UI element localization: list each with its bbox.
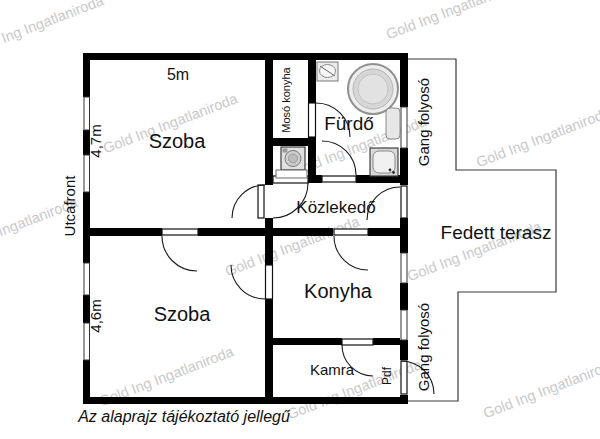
room-label-gang-folyoso-also: Gang folyosó [415,303,432,391]
wall-left [83,360,90,404]
room-label-kamra: Kamra [310,361,355,378]
caption-text: Az alaprajz tájékoztató jellegű [77,408,291,425]
watermark-text: Gold Ing Ingatlaniroda [223,213,363,279]
door-szoba1-kozlekedo [232,185,265,218]
dimension-height-4-7m: 4,7m [87,124,104,157]
wall-top [83,53,408,60]
dimension-width-5m: 5m [167,66,189,83]
wall-right [400,148,408,185]
door-kozlekedo-konyha [334,229,368,270]
bathroom-sink-icon [317,62,338,81]
room-label-furdo: Fürdő [324,113,374,134]
room-label-szoba-felso: Szoba [149,130,207,152]
window [84,263,90,295]
room-label-gang-folyoso-felso: Gang folyosó [415,78,432,166]
wall-konyha-kamra [265,338,342,345]
room-label-szoba-also: Szoba [154,303,212,325]
wall-moso-bottom [265,138,316,146]
wall-left [83,53,90,97]
wall-right [400,283,408,310]
dimension-height-4-6m: 4,6m [87,299,104,332]
window [401,310,407,340]
wall-right [400,340,408,360]
room-label-moso-konyha: Mosó konyha [280,66,292,132]
wall-konyha-kamra [373,338,400,345]
wall-right [400,53,408,107]
washbasin-icon [386,108,400,139]
watermark-text: Gold Ing Ingatlaniroda [0,0,107,58]
wall-right [400,218,408,253]
shower-tray-icon [370,148,398,176]
floor-plan-svg: Gold Ing Ingatlaniroda Gold Ing Ingatlan… [0,0,600,439]
door-szoba1-szoba2 [162,229,198,271]
wall-middle-horizontal [368,228,400,236]
utcafront-label: Utcafront [61,175,78,237]
wall-furdo-bottom [308,175,322,183]
wall-middle-horizontal [198,228,333,236]
room-label-pdf: Pdf [380,366,394,385]
room-label-konyha: Konyha [304,280,373,302]
watermark-text: Gold Ing Ingatlaniroda [481,355,600,421]
counter-icon [276,170,307,178]
wall-vertical-divider [265,60,273,185]
wall-moso-furdo [308,60,316,103]
wall-middle-horizontal [83,228,162,236]
wall-left [83,192,90,263]
wall-vertical-divider [265,299,273,397]
room-label-kozlekedo: Közlekedő [296,198,375,217]
washing-machine-icon [281,147,305,170]
floor-plan-image: Gold Ing Ingatlaniroda Gold Ing Ingatlan… [0,0,600,439]
window [401,253,407,283]
boiler-tub-icon [348,64,398,114]
window [401,107,407,148]
watermark-text: Gold Ing Ingatlaniroda [474,104,600,170]
wall-right [400,395,408,404]
wall-bottom [83,397,408,404]
room-label-fedett-terasz: Fedett terasz [441,222,552,243]
watermark-text: Gold Ing Ingatlaniroda [384,0,524,42]
window [84,155,90,192]
wall-vertical-divider [265,218,273,265]
